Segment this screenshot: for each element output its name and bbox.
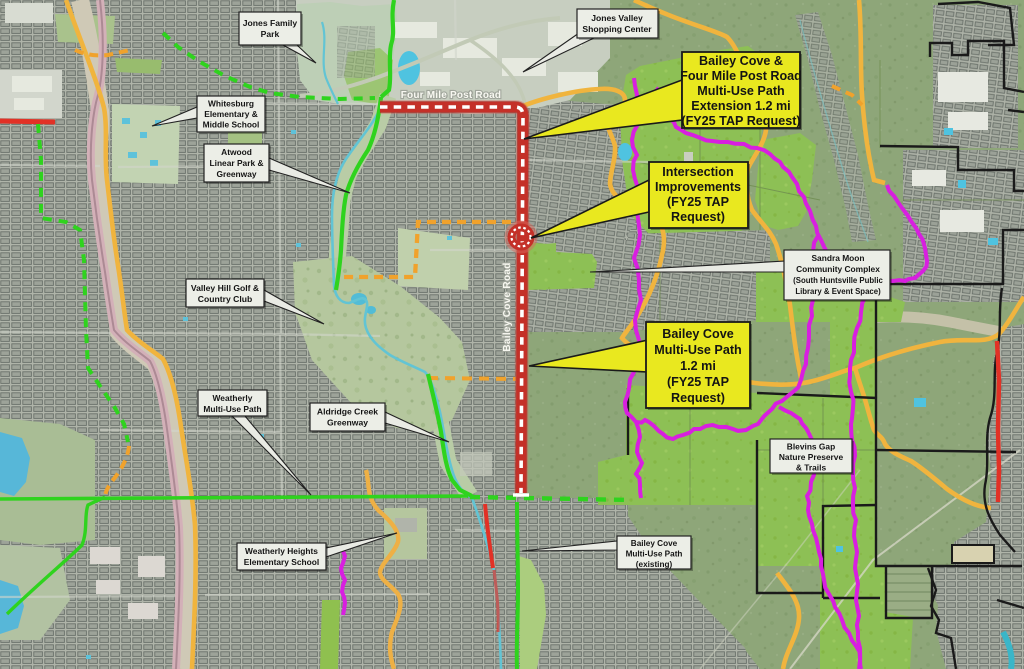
svg-text:Middle School: Middle School — [203, 120, 260, 130]
svg-text:Bailey Cove: Bailey Cove — [631, 539, 678, 548]
svg-text:Aldridge Creek: Aldridge Creek — [317, 407, 378, 417]
svg-text:(FY25 TAP: (FY25 TAP — [667, 195, 729, 209]
svg-text:Extension 1.2 mi: Extension 1.2 mi — [691, 99, 790, 113]
svg-text:Valley Hill Golf &: Valley Hill Golf & — [191, 283, 259, 293]
svg-text:Park: Park — [261, 29, 280, 39]
svg-text:Nature Preserve: Nature Preserve — [779, 452, 844, 462]
svg-text:Community Complex: Community Complex — [796, 264, 880, 274]
svg-text:Bailey Cove &: Bailey Cove & — [699, 54, 783, 68]
svg-text:Weatherly Heights: Weatherly Heights — [245, 546, 318, 556]
svg-text:Greenway: Greenway — [216, 169, 256, 179]
svg-text:Multi-Use Path: Multi-Use Path — [626, 550, 683, 559]
svg-text:Greenway: Greenway — [327, 418, 368, 428]
svg-text:Blevins Gap: Blevins Gap — [787, 442, 835, 452]
svg-text:Whitesburg: Whitesburg — [208, 99, 254, 109]
svg-text:Multi-Use Path: Multi-Use Path — [203, 404, 261, 414]
svg-text:Shopping Center: Shopping Center — [582, 24, 652, 34]
svg-text:Jones Valley: Jones Valley — [591, 13, 643, 23]
svg-text:(South Huntsville Public: (South Huntsville Public — [793, 276, 883, 285]
svg-text:(existing): (existing) — [636, 560, 673, 569]
svg-text:Bailey Cove Road: Bailey Cove Road — [502, 262, 513, 351]
svg-text:Four Mile Post Road: Four Mile Post Road — [680, 69, 802, 83]
svg-text:Request): Request) — [671, 210, 725, 224]
svg-text:Intersection: Intersection — [662, 165, 733, 179]
svg-text:Multi-Use Path: Multi-Use Path — [654, 343, 741, 357]
svg-text:Atwood: Atwood — [221, 147, 252, 157]
svg-text:(FY25 TAP: (FY25 TAP — [667, 375, 729, 389]
svg-text:& Trails: & Trails — [796, 463, 827, 473]
svg-text:Request): Request) — [671, 391, 725, 405]
svg-text:Library & Event Space): Library & Event Space) — [795, 287, 881, 296]
svg-text:Elementary School: Elementary School — [244, 557, 319, 567]
svg-text:Elementary &: Elementary & — [204, 109, 258, 119]
svg-text:Bailey Cove: Bailey Cove — [662, 327, 733, 341]
svg-text:1.2 mi: 1.2 mi — [680, 359, 716, 373]
svg-text:Country Club: Country Club — [198, 294, 252, 304]
svg-text:Multi-Use Path: Multi-Use Path — [697, 84, 784, 98]
svg-text:Weatherly: Weatherly — [213, 393, 253, 403]
svg-text:(FY25 TAP Request): (FY25 TAP Request) — [681, 114, 800, 128]
svg-text:Improvements: Improvements — [655, 180, 741, 194]
svg-text:Linear Park &: Linear Park & — [210, 158, 264, 168]
svg-text:Sandra Moon: Sandra Moon — [811, 253, 864, 263]
svg-text:Four Mile Post Road: Four Mile Post Road — [401, 90, 501, 101]
svg-text:Jones Family: Jones Family — [243, 18, 298, 28]
